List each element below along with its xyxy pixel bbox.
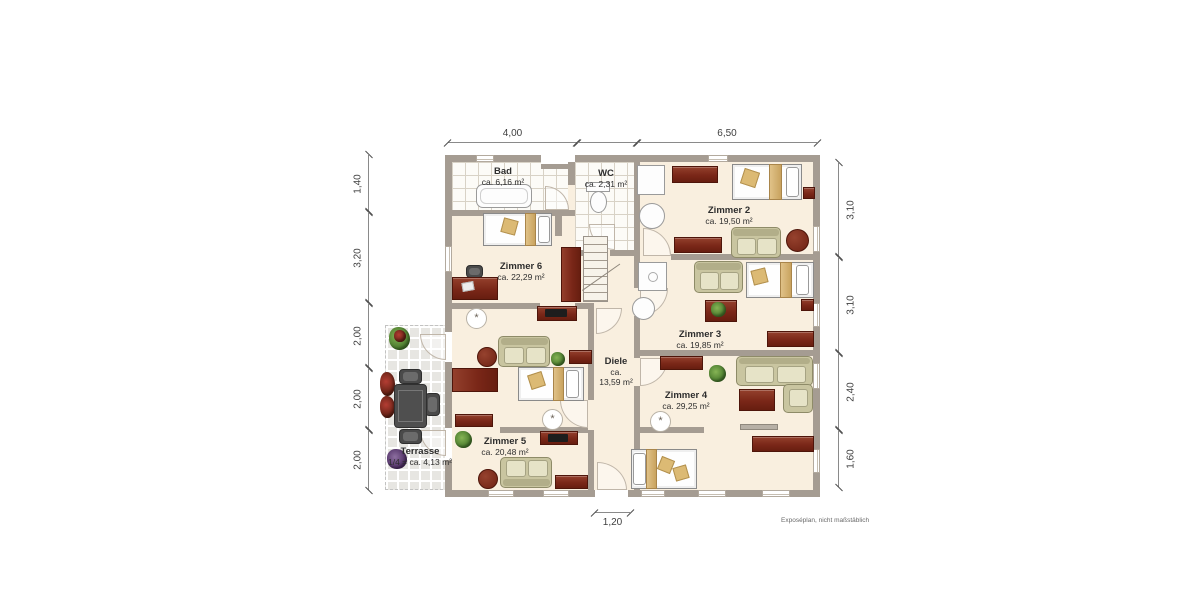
room-label-zimmer4: Zimmer 4 ca. 29,25 m²: [662, 390, 709, 411]
window: [813, 363, 820, 389]
room-name: Zimmer 2: [705, 205, 752, 216]
sofa: [694, 261, 743, 293]
flower-box: [394, 330, 406, 342]
bed-headboard: [780, 262, 792, 298]
dim-label: 1,60: [846, 449, 857, 468]
room-name: Zimmer 5: [481, 436, 528, 447]
dim-right-1: 3,10: [838, 163, 839, 257]
window: [813, 449, 820, 473]
hall-cabinet: [561, 247, 581, 302]
dim-right-4: 1,60: [838, 430, 839, 487]
coffee-table: [739, 389, 775, 411]
dim-top-left: 4,00: [448, 142, 577, 143]
room-label-terrasse: Terrasse 1/4 = ca. 4,13 m²: [388, 446, 452, 467]
room-label-zimmer2: Zimmer 2 ca. 19,50 m²: [705, 205, 752, 226]
dim-label: 4,00: [500, 128, 525, 139]
console-table: [740, 424, 778, 430]
window: [445, 246, 452, 272]
window: [641, 490, 665, 497]
wall: [640, 427, 704, 433]
dim-left-3: 2,00: [368, 303, 369, 368]
toilet-bowl: [590, 191, 607, 213]
sofa: [498, 336, 550, 367]
room-label-diele: Diele ca. 13,59 m²: [599, 356, 633, 387]
sofa: [500, 457, 552, 488]
dim-label: 2,00: [353, 389, 364, 408]
washbasin-unit: [637, 165, 665, 195]
room-label-zimmer3: Zimmer 3 ca. 19,85 m²: [676, 329, 723, 350]
room-label-bad: Bad ca. 6,16 m²: [482, 166, 525, 187]
plant: [551, 352, 565, 366]
bed-pillow: [786, 167, 799, 197]
dim-label: 6,50: [714, 128, 739, 139]
room-area: ca. 19,85 m²: [676, 340, 723, 350]
window: [543, 490, 569, 497]
dresser: [569, 350, 592, 364]
ceiling-lamp: *: [542, 409, 563, 430]
room-area: ca. 19,50 m²: [705, 216, 752, 226]
room-area-value: 13,59 m²: [599, 377, 633, 387]
bed-headboard: [553, 367, 564, 401]
room-name: WC: [585, 168, 628, 179]
room-area: ca. 20,48 m²: [481, 447, 528, 457]
room-area: ca. 29,25 m²: [662, 401, 709, 411]
flower-box: [380, 372, 395, 396]
wardrobe: [752, 436, 814, 452]
dim-left-1: 1,40: [368, 155, 369, 212]
dim-label: 3,10: [846, 200, 857, 219]
bathtub: [476, 184, 532, 208]
window: [708, 155, 728, 162]
room-label-wc: WC ca. 2,31 m²: [585, 168, 628, 189]
room-name: Bad: [482, 166, 525, 177]
dim-label: 2,00: [353, 450, 364, 469]
room-area-prefix: ca.: [599, 367, 633, 377]
dim-label: 3,20: [353, 248, 364, 267]
room-name: Zimmer 6: [497, 261, 544, 272]
dim-left-4: 2,00: [368, 368, 369, 430]
wall: [555, 216, 562, 236]
entrance-opening: [595, 490, 628, 497]
room-area: ca. 2,31 m²: [585, 179, 628, 189]
nightstand: [801, 299, 814, 311]
wall: [568, 162, 575, 185]
dim-top-right: 6,50: [637, 142, 817, 143]
flower-box: [380, 396, 395, 418]
bed-pillow: [633, 453, 646, 485]
shower: [638, 262, 667, 291]
plant: [455, 431, 472, 448]
room-label-zimmer5: Zimmer 5 ca. 20,48 m²: [481, 436, 528, 457]
disclaimer-note: Exposéplan, nicht maßstäblich: [781, 517, 869, 524]
washbasin: [632, 297, 655, 320]
plant: [709, 365, 726, 382]
staircase: [583, 236, 608, 302]
bed-headboard: [769, 164, 782, 200]
bed-headboard: [525, 213, 536, 246]
round-table: [477, 347, 497, 367]
dim-bottom: 1,20: [595, 512, 630, 513]
sideboard: [767, 331, 814, 347]
dim-label: 2,40: [846, 382, 857, 401]
sideboard: [660, 356, 703, 370]
washbasin: [639, 203, 665, 229]
round-table: [478, 469, 498, 489]
sideboard: [452, 368, 498, 392]
bed-pillow: [538, 216, 550, 243]
sofa: [731, 227, 781, 258]
window: [488, 490, 514, 497]
room-area: ca. 6,16 m²: [482, 177, 525, 187]
ceiling-lamp: *: [466, 308, 487, 329]
dim-left-5: 2,00: [368, 430, 369, 490]
bed-pillow: [796, 265, 809, 295]
dim-right-2: 3,10: [838, 257, 839, 353]
dresser: [555, 475, 588, 489]
window: [698, 490, 726, 497]
corner-sofa-arm: [783, 384, 813, 413]
terrace-chair: [425, 393, 440, 416]
plant: [711, 302, 726, 317]
dim-label: 1,40: [353, 174, 364, 193]
dresser: [455, 414, 493, 427]
tv: [548, 434, 568, 442]
window: [813, 303, 820, 327]
desk: [452, 277, 498, 300]
terrace-table-detail: [398, 390, 423, 422]
terrace-chair: [399, 369, 422, 384]
bed-pillow: [566, 370, 579, 398]
nightstand: [803, 187, 815, 199]
room-label-zimmer6: Zimmer 6 ca. 22,29 m²: [497, 261, 544, 282]
room-name: Zimmer 3: [676, 329, 723, 340]
dim-label: 2,00: [353, 326, 364, 345]
wall: [588, 430, 594, 490]
terrace-chair: [399, 429, 422, 444]
dim-top-middle: [577, 142, 637, 143]
room-name: Zimmer 4: [662, 390, 709, 401]
dresser: [672, 166, 718, 183]
dim-left-2: 3,20: [368, 212, 369, 303]
wall: [610, 250, 634, 256]
dim-label: 1,20: [600, 517, 625, 528]
round-table: [786, 229, 809, 252]
dim-right-3: 2,40: [838, 353, 839, 430]
room-area: ca. 22,29 m²: [497, 272, 544, 282]
floor-plan: * * * Bad ca. 6,16 m² WC ca.: [0, 0, 1200, 600]
terrace-door-opening: [445, 332, 452, 362]
wall: [452, 303, 540, 309]
ceiling-lamp: *: [650, 411, 671, 432]
window: [762, 490, 790, 497]
corner-sofa: [736, 356, 813, 386]
window: [476, 155, 494, 162]
dim-label: 3,10: [846, 295, 857, 314]
tv: [545, 309, 567, 317]
sideboard: [674, 237, 722, 253]
room-name: Diele: [599, 356, 633, 367]
window: [813, 226, 820, 252]
room-area: 1/4 = ca. 4,13 m²: [388, 457, 452, 467]
room-name: Terrasse: [388, 446, 452, 457]
bed-headboard: [646, 449, 657, 489]
